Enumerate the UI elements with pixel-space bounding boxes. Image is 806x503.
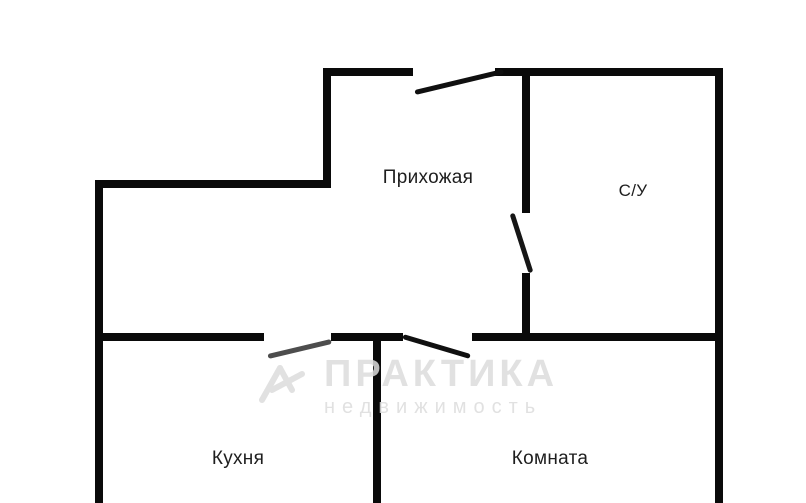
wall-entry-step-vertical (323, 68, 331, 188)
door-kitchen-swing (267, 339, 331, 359)
wall-kitchen-room-divider (373, 333, 381, 503)
wall-upper-horizontal (95, 180, 331, 188)
wall-middle-center-segment (331, 333, 403, 341)
wall-right-outer (715, 68, 723, 503)
room-label-kitchen: Кухня (212, 448, 264, 470)
room-label-bathroom: С/У (619, 181, 648, 201)
watermark-brand-text: ПРАКТИКА (324, 354, 558, 394)
door-entrance-swing (414, 69, 504, 95)
watermark-logo-icon (258, 360, 310, 406)
wall-left-outer (95, 180, 103, 503)
door-room-swing (402, 334, 471, 359)
room-label-hallway: Прихожая (383, 167, 473, 189)
room-label-room: Комната (512, 448, 589, 470)
wall-bathroom-left-top (522, 68, 530, 213)
wall-middle-right-segment (472, 333, 723, 341)
watermark: ПРАКТИКА недвижимость (258, 354, 558, 419)
wall-bathroom-left-bottom (522, 273, 530, 341)
floor-plan: Прихожая С/У Кухня Комната ПРАКТИКА недв… (0, 0, 806, 503)
watermark-tagline-text: недвижимость (324, 395, 558, 419)
wall-middle-left-segment (95, 333, 264, 341)
door-bathroom-swing (510, 213, 534, 274)
wall-top-left-segment (325, 68, 413, 76)
